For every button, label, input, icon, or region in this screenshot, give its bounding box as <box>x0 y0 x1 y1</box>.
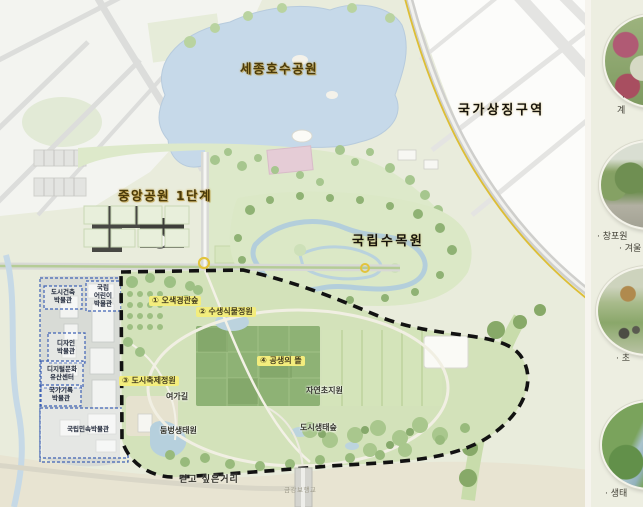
museum-label-line: 박물관 <box>94 300 112 308</box>
museum-label-line: 유산센터 <box>47 374 77 382</box>
label-urban-architecture-museum: 도시건축 박물관 <box>51 289 75 305</box>
photo-caption-4-line1: · 생태 <box>605 486 627 499</box>
label-geumgang-footbridge: 금강보행교 <box>284 487 316 494</box>
zone-label-five-color-forest: ① 오색경관숲 <box>149 296 201 306</box>
photo-caption-1-line1: · <box>622 93 625 103</box>
label-walking-street: 걷고 싶은거리 <box>179 476 239 485</box>
photo-caption-1-line2: 계 <box>617 103 625 116</box>
label-national-archives-museum: 국가기록 박물관 <box>49 387 73 403</box>
masterplan-screenshot: 세종호수공원 국가상징구역 중앙공원 1단계 국립수목원 ① 오색경관숲 ② 수… <box>0 0 643 507</box>
museum-label-line: 국립민속박물관 <box>67 426 109 434</box>
museum-label-line: 박물관 <box>49 395 73 403</box>
zone-label-urban-festival-garden: ③ 도시축제정원 <box>119 376 179 386</box>
label-design-museum: 디자인 박물관 <box>57 340 75 356</box>
museum-label-line: 박물관 <box>51 297 75 305</box>
label-pond-ecology-garden: 둠벙생태원 <box>160 427 197 435</box>
label-central-park-phase1: 중앙공원 1단계 <box>118 189 212 202</box>
zone-label-field-of-coexistence: ④ 공생의 뜰 <box>257 356 305 366</box>
photo-caption-2-line2: · 겨울 <box>619 241 641 254</box>
label-national-folk-museum: 국립민속박물관 <box>67 426 109 434</box>
label-national-childrens-museum: 국립 어린이 박물관 <box>94 284 112 307</box>
label-natural-grassland: 자연초지원 <box>306 387 343 395</box>
label-national-arboretum: 국립수목원 <box>352 235 424 249</box>
zone-label-aquatic-plant-garden: ② 수생식물정원 <box>196 307 256 317</box>
label-national-symbol-zone: 국가상징구역 <box>458 104 545 118</box>
label-digital-heritage-center: 디지털문화 유산센터 <box>47 366 77 382</box>
label-urban-ecology-forest: 도시생태숲 <box>300 424 337 432</box>
museum-label-line: 박물관 <box>57 348 75 356</box>
label-sejong-lake-park: 세종호수공원 <box>240 62 318 75</box>
label-leisure-trail: 여가길 <box>166 393 188 401</box>
photo-caption-3-line1: · 초 <box>616 351 630 364</box>
